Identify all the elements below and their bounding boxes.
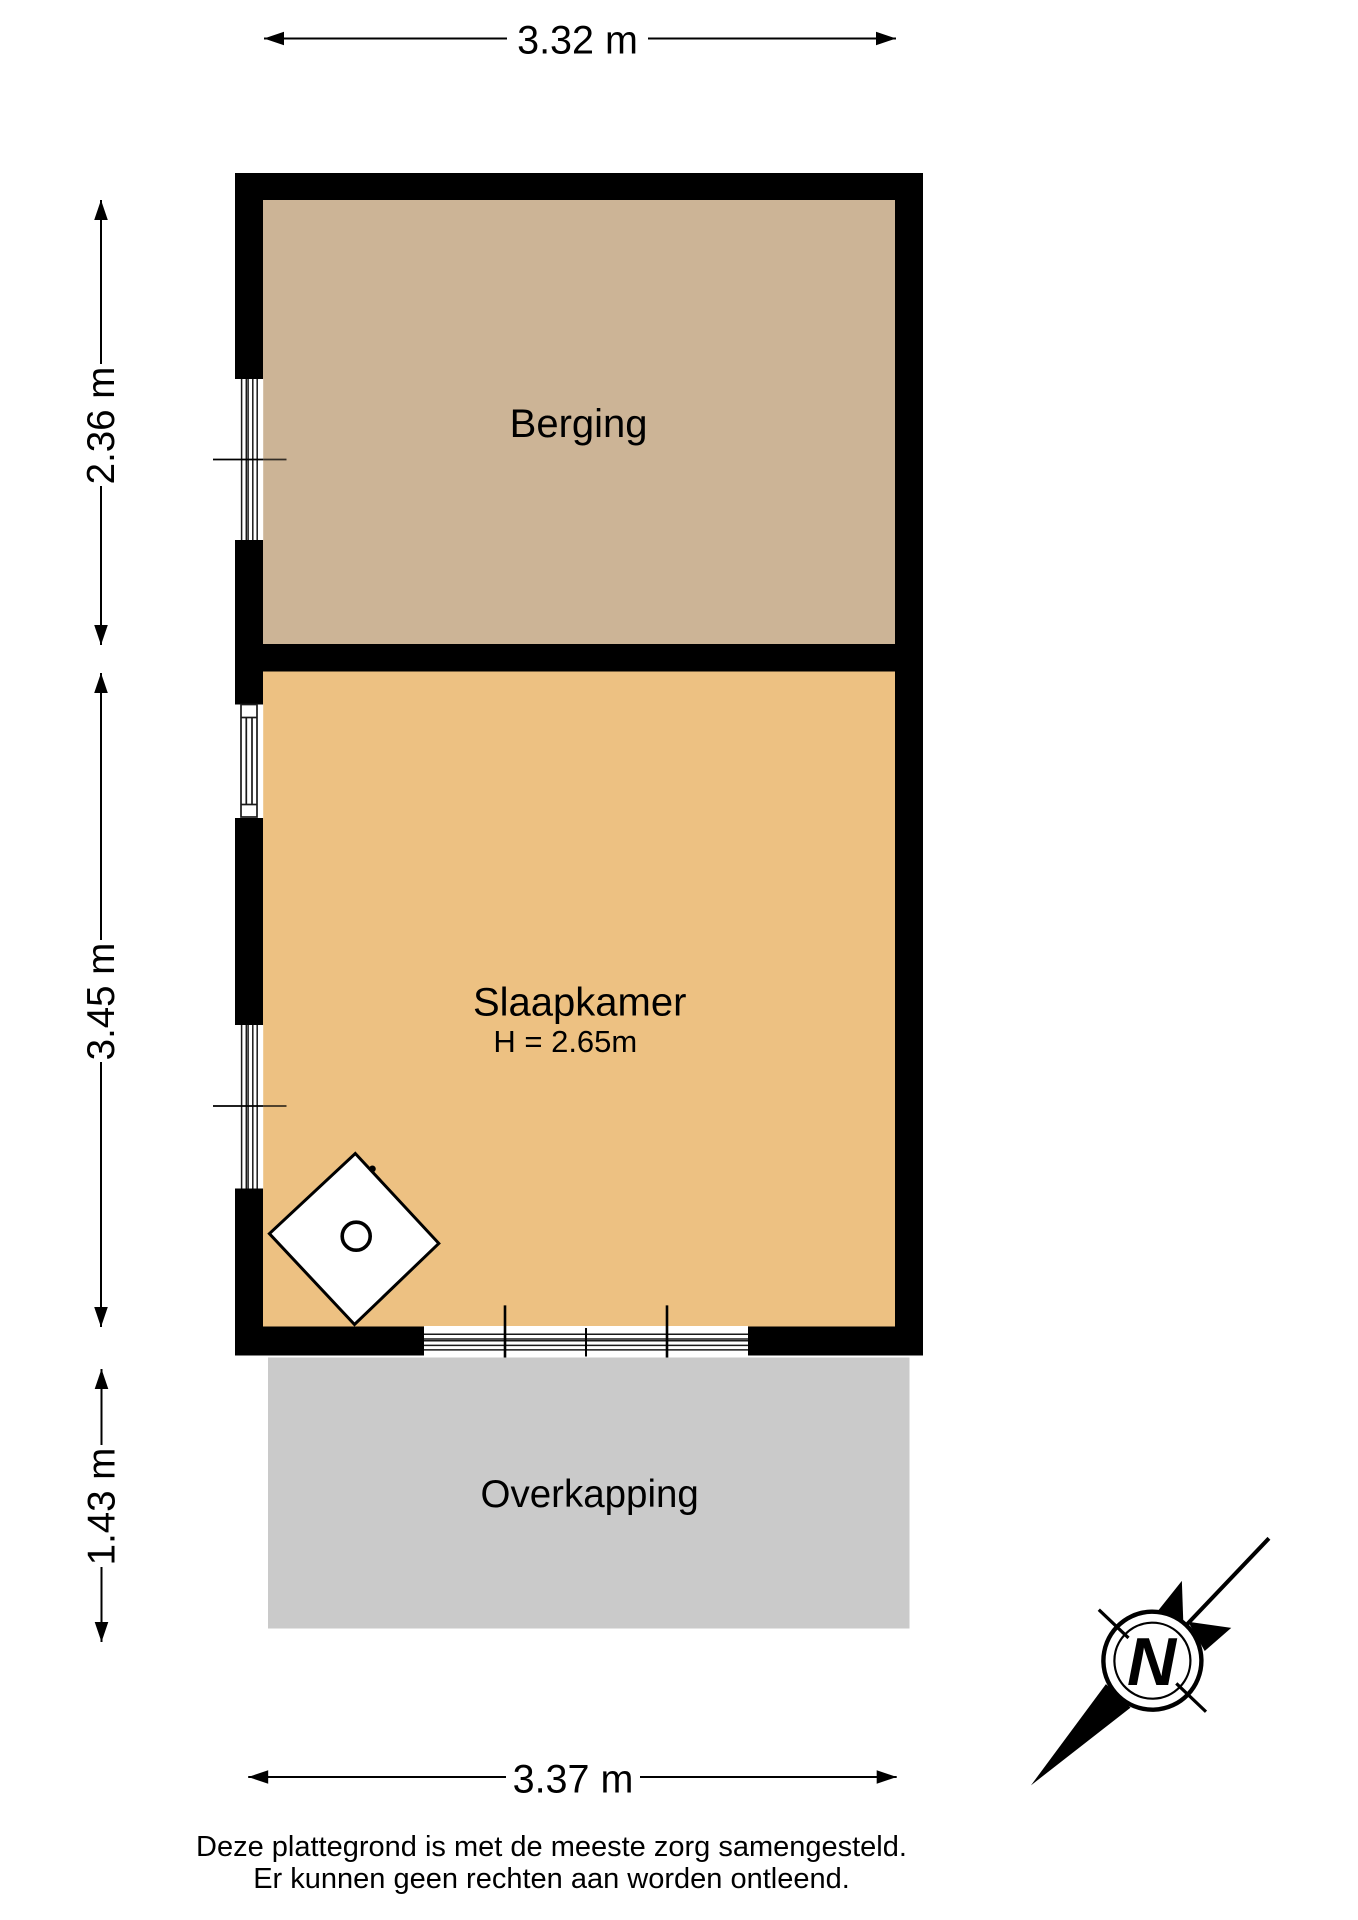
svg-text:Overkapping: Overkapping [481,1473,699,1516]
svg-text:Deze plattegrond is met de mee: Deze plattegrond is met de meeste zorg s… [196,1831,907,1863]
svg-text:Slaapkamer: Slaapkamer [473,981,686,1025]
svg-text:2.36 m: 2.36 m [80,367,123,485]
svg-text:1.43 m: 1.43 m [80,1448,123,1566]
svg-text:3.45 m: 3.45 m [80,943,123,1061]
svg-text:H = 2.65m: H = 2.65m [493,1024,637,1059]
svg-text:3.37 m: 3.37 m [513,1757,634,1801]
svg-text:Er kunnen geen rechten aan wor: Er kunnen geen rechten aan worden ontlee… [253,1863,850,1895]
svg-text:3.32 m: 3.32 m [517,19,638,63]
svg-text:Berging: Berging [510,402,648,446]
svg-text:N: N [1127,1624,1178,1700]
